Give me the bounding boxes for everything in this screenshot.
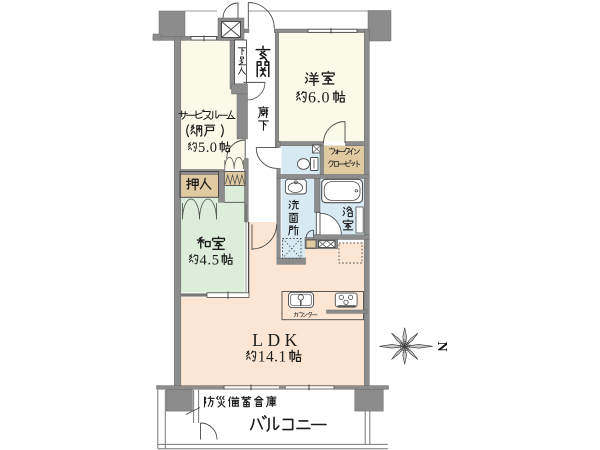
svg-text:4.5: 4.5 <box>200 252 220 268</box>
svg-text:14.1: 14.1 <box>258 349 287 366</box>
svg-text:5.0: 5.0 <box>198 140 217 156</box>
svg-text:N: N <box>434 341 449 351</box>
svg-text:LDK: LDK <box>252 330 301 350</box>
svg-text:6.0: 6.0 <box>308 89 330 106</box>
